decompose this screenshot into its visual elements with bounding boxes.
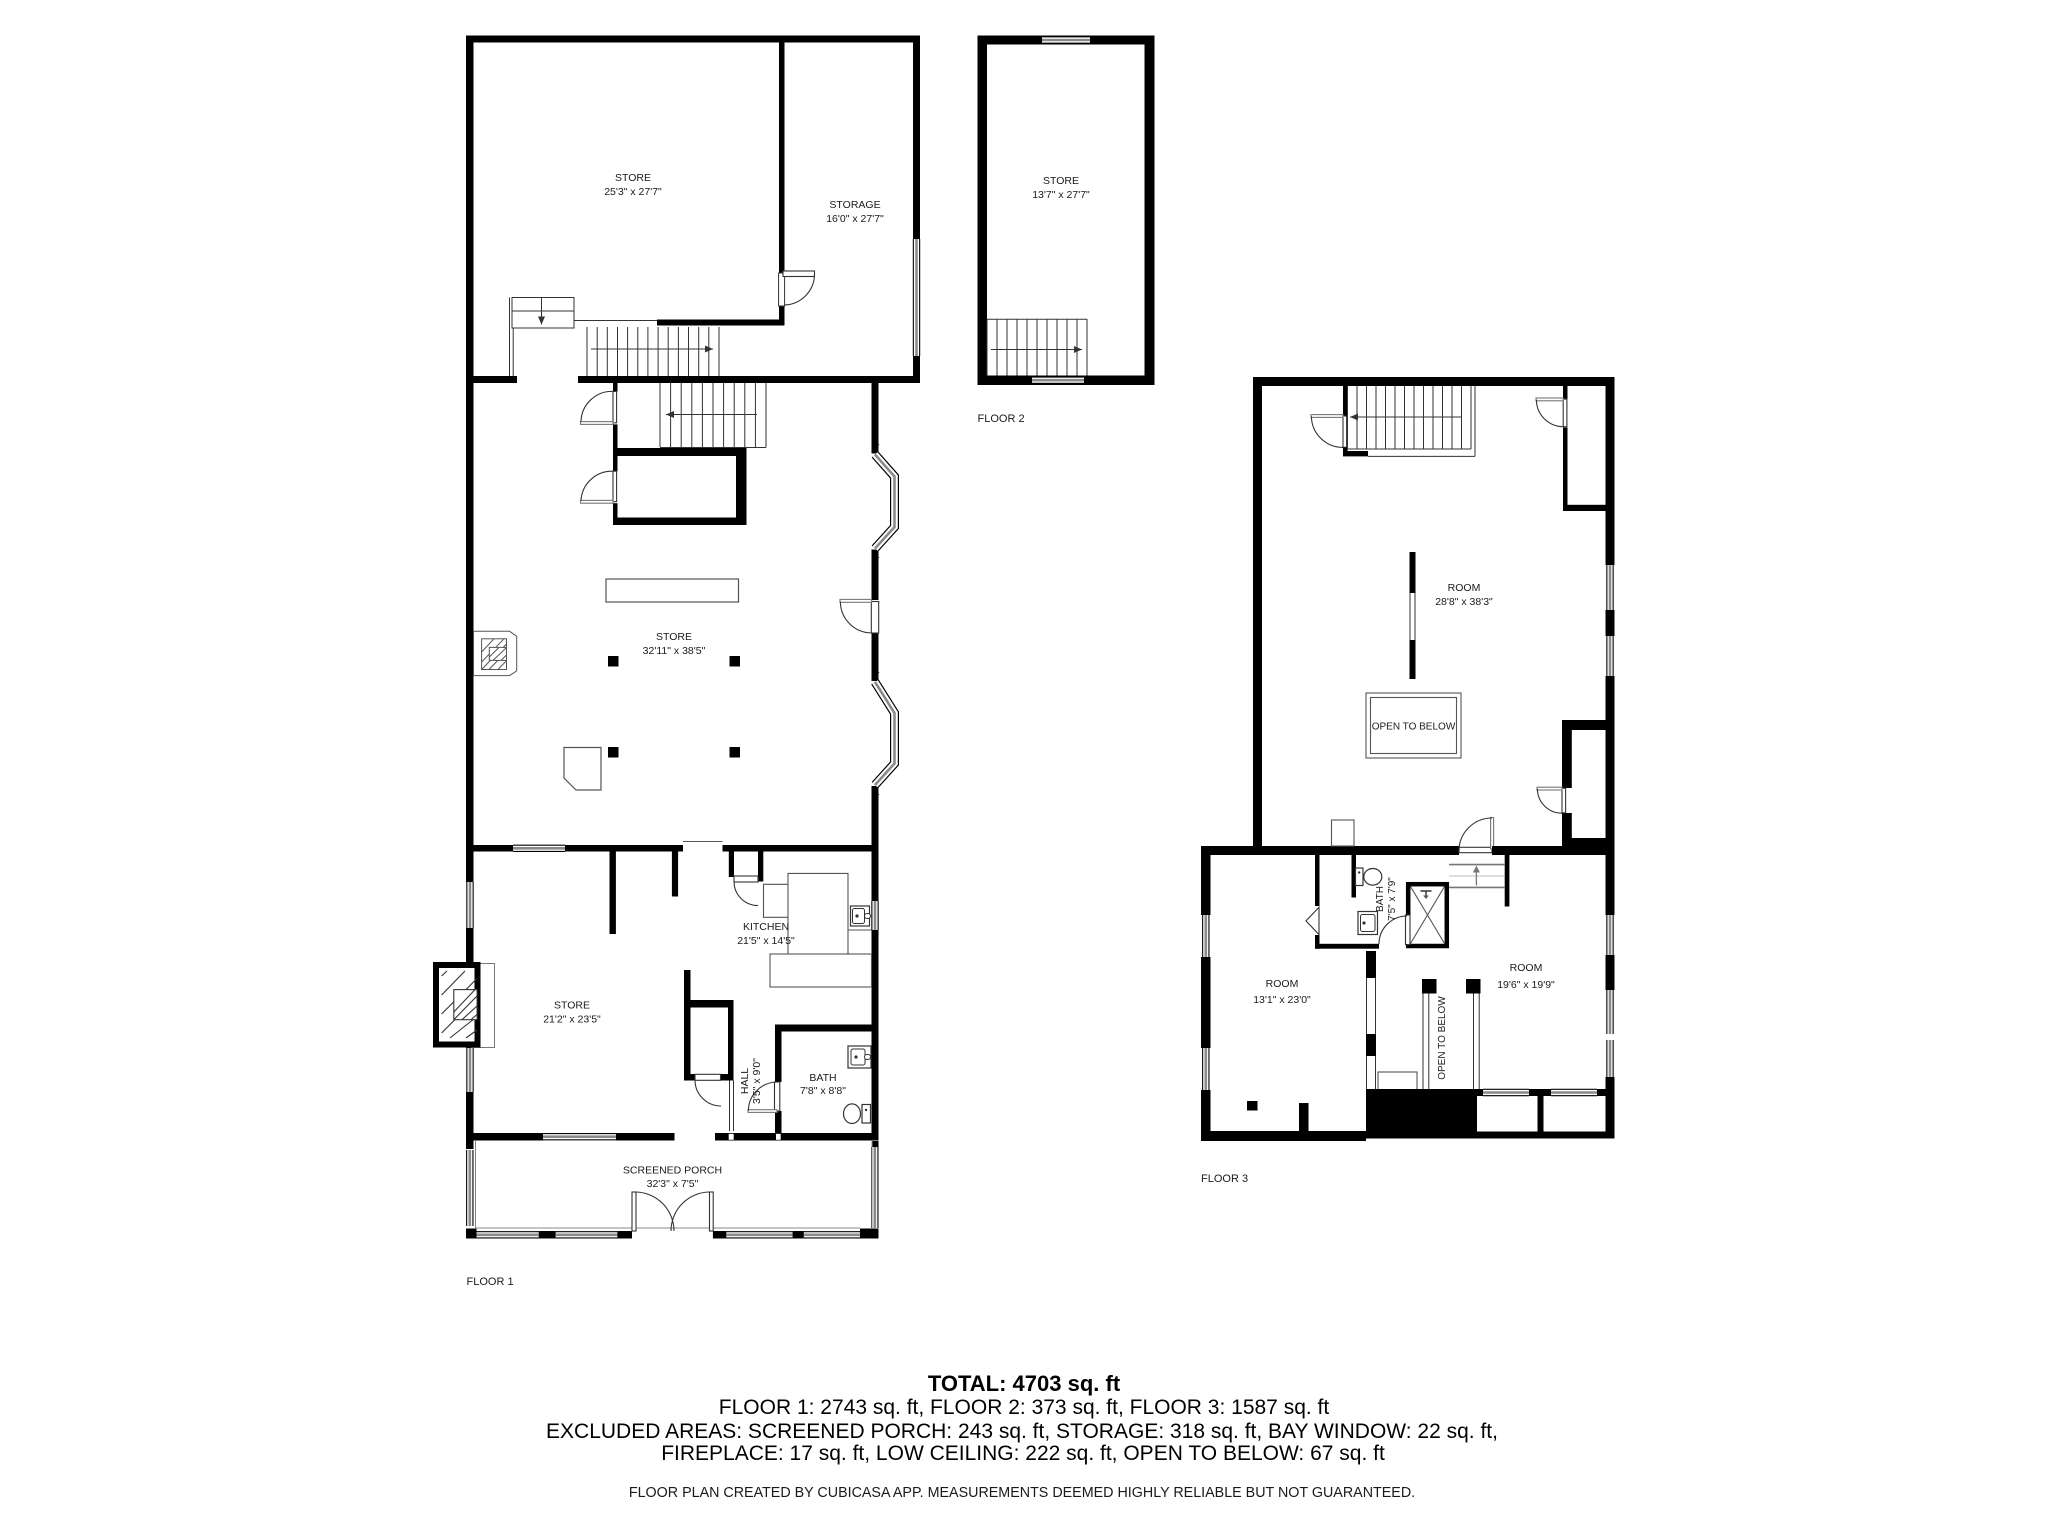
svg-text:13'7" x 27'7": 13'7" x 27'7" bbox=[1032, 189, 1090, 201]
svg-text:19'6" x 19'9": 19'6" x 19'9" bbox=[1497, 979, 1555, 991]
svg-text:TOTAL: 4703 sq. ft: TOTAL: 4703 sq. ft bbox=[928, 1371, 1121, 1396]
svg-text:16'0" x 27'7": 16'0" x 27'7" bbox=[826, 213, 884, 225]
svg-text:ROOM: ROOM bbox=[1266, 978, 1299, 990]
svg-text:FIREPLACE: 17 sq. ft, LOW CEIL: FIREPLACE: 17 sq. ft, LOW CEILING: 222 s… bbox=[661, 1442, 1385, 1465]
svg-text:BATH: BATH bbox=[809, 1072, 836, 1084]
svg-text:32'11" x 38'5": 32'11" x 38'5" bbox=[643, 645, 706, 657]
svg-text:FLOOR 3: FLOOR 3 bbox=[1201, 1173, 1248, 1185]
svg-text:KITCHEN: KITCHEN bbox=[743, 921, 789, 933]
svg-text:STORE: STORE bbox=[656, 631, 692, 643]
svg-text:SCREENED PORCH: SCREENED PORCH bbox=[623, 1165, 722, 1177]
svg-text:ROOM: ROOM bbox=[1510, 962, 1543, 974]
svg-text:OPEN TO BELOW: OPEN TO BELOW bbox=[1437, 996, 1448, 1080]
svg-text:ROOM: ROOM bbox=[1448, 582, 1481, 594]
svg-text:STORE: STORE bbox=[1043, 175, 1079, 187]
svg-text:7'8" x 8'8": 7'8" x 8'8" bbox=[800, 1085, 846, 1097]
svg-text:STORE: STORE bbox=[554, 1000, 590, 1012]
svg-text:FLOOR 1: FLOOR 1 bbox=[467, 1276, 514, 1288]
svg-text:STORAGE: STORAGE bbox=[829, 199, 880, 211]
svg-text:25'3" x 27'7": 25'3" x 27'7" bbox=[604, 186, 662, 198]
svg-text:FLOOR 1: 2743 sq. ft, FLOOR 2:: FLOOR 1: 2743 sq. ft, FLOOR 2: 373 sq. f… bbox=[719, 1396, 1330, 1419]
svg-text:21'5" x 14'5": 21'5" x 14'5" bbox=[737, 935, 795, 947]
svg-text:21'2" x 23'5": 21'2" x 23'5" bbox=[543, 1014, 601, 1026]
svg-text:13'1" x 23'0": 13'1" x 23'0" bbox=[1253, 994, 1311, 1006]
svg-text:OPEN TO BELOW: OPEN TO BELOW bbox=[1372, 722, 1456, 733]
svg-text:28'8" x 38'3": 28'8" x 38'3" bbox=[1435, 596, 1493, 608]
svg-text:STORE: STORE bbox=[615, 172, 651, 184]
svg-text:32'3" x 7'5": 32'3" x 7'5" bbox=[647, 1178, 699, 1190]
svg-text:EXCLUDED AREAS: SCREENED PORCH: EXCLUDED AREAS: SCREENED PORCH: 243 sq. … bbox=[546, 1420, 1498, 1443]
svg-text:FLOOR 2: FLOOR 2 bbox=[978, 413, 1025, 425]
svg-text:FLOOR PLAN CREATED BY CUBICASA: FLOOR PLAN CREATED BY CUBICASA APP. MEAS… bbox=[629, 1485, 1415, 1501]
